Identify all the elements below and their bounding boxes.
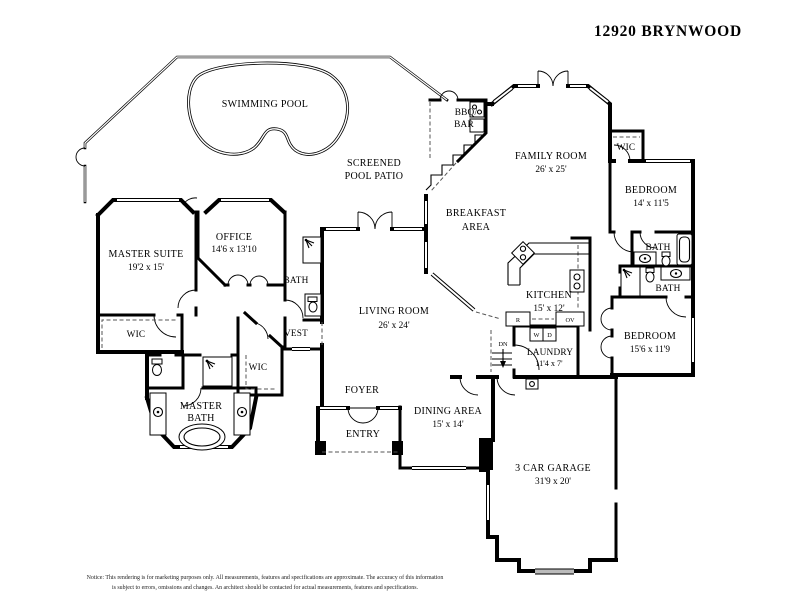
plan-title: 12920 BRYNWOOD [594,23,742,40]
labels: 12920 BRYNWOOD SWIMMING POOL SCREENED PO… [87,23,742,591]
master-vanity-left [150,393,166,435]
kitchen-dim: 15' x 12' [533,304,565,314]
master-suite-label: MASTER SUITE [109,249,184,260]
family-room-label: FAMILY ROOM [515,151,587,162]
living-room-dim: 26' x 24' [378,321,410,331]
dining-dim: 15' x 14' [432,420,464,430]
foyer-label: FOYER [345,385,379,396]
bedroom2-label: BEDROOM [624,331,676,342]
breakfast-label-2: AREA [462,222,491,233]
bath1-label: BATH [645,243,670,253]
living-french-doors [358,212,392,229]
family-room-dim: 26' x 25' [535,165,567,175]
office-double-doors [228,275,268,285]
bbq-bar-label-2: BAR [454,120,474,130]
dining-hall-door-arc [460,377,478,395]
garage-dim: 31'9 x 20' [535,477,571,487]
wic-left-label: WIC [127,330,146,340]
swimming-pool-label: SWIMMING POOL [222,99,308,110]
bbq-bar-label-1: BBQ/ [455,108,478,118]
master-bath-label-1: MASTER [180,401,222,412]
master-toilet-icon [153,365,162,376]
vest-label: VEST [284,329,308,339]
notice-line-1: Notice: This rendering is for marketing … [87,574,444,581]
bedroom1-label: BEDROOM [625,185,677,196]
notice-line-2: is subject to errors, omissions and chan… [112,584,419,591]
patio-door-arc [76,148,85,166]
entry-double-doors [348,408,378,423]
bath3-door-arc [285,300,303,318]
washer-label: W [534,332,540,339]
master-bath-label-2: BATH [187,413,214,424]
windows [117,86,693,520]
basement-stairs [492,349,512,368]
master-suite-dim: 19'2 x 15' [128,263,164,273]
garage-label: 3 CAR GARAGE [515,463,591,474]
breakfast-label-1: BREAKFAST [446,208,506,219]
floor-plan-drawing: 12920 BRYNWOOD SWIMMING POOL SCREENED PO… [0,0,792,612]
hall-arched-openings [601,308,612,358]
bath3-toilet-icon [309,302,317,312]
family-french-doors [538,71,568,86]
wic-left-door-arc [154,315,176,337]
garage-door-arc [497,377,515,395]
cooktop-icon [512,242,535,265]
bedroom2-door-arc [666,297,686,317]
garage-door [535,569,574,574]
kitchen-label: KITCHEN [526,290,572,301]
dining-label: DINING AREA [414,406,482,417]
bath2-shower-icon [621,267,640,296]
patio-label-1: SCREENED [347,158,401,169]
entry-label: ENTRY [346,429,380,440]
dining-garage-pillar [479,438,493,470]
dryer-label: D [547,332,552,339]
wic-right-label: WIC [249,363,268,373]
floor-plan-sheet: 12920 BRYNWOOD SWIMMING POOL SCREENED PO… [0,0,792,612]
laundry-label: LAUNDRY [527,348,573,358]
master-toilet-tank [152,359,162,364]
bath2-label: BATH [655,284,680,294]
living-room-label: LIVING ROOM [359,306,429,317]
down-label: DN [498,341,508,348]
office-label: OFFICE [216,232,252,243]
laundry-dim: 11'4 x 7' [535,359,563,368]
bath3-label: BATH [283,276,308,286]
stairs [426,135,512,368]
wic-right-door-arc [256,323,268,339]
master-door-arc [178,290,196,308]
water-heater-icon [526,379,538,389]
master-vanity-right [234,393,250,435]
patio-label-2: POOL PATIO [345,171,404,182]
office-dim: 14'6 x 13'10 [211,245,257,255]
wic-top-label: WIC [617,143,636,153]
oven-label: OV [565,317,575,324]
bedroom1-dim: 14' x 11'5 [633,199,669,209]
bath2-toilet-icon [646,272,654,282]
kitchen-fixtures [470,102,590,389]
bath1-toilet-icon [662,256,670,266]
bedroom2-dim: 15'6 x 11'9 [630,345,671,355]
bath-fixtures [150,234,692,450]
